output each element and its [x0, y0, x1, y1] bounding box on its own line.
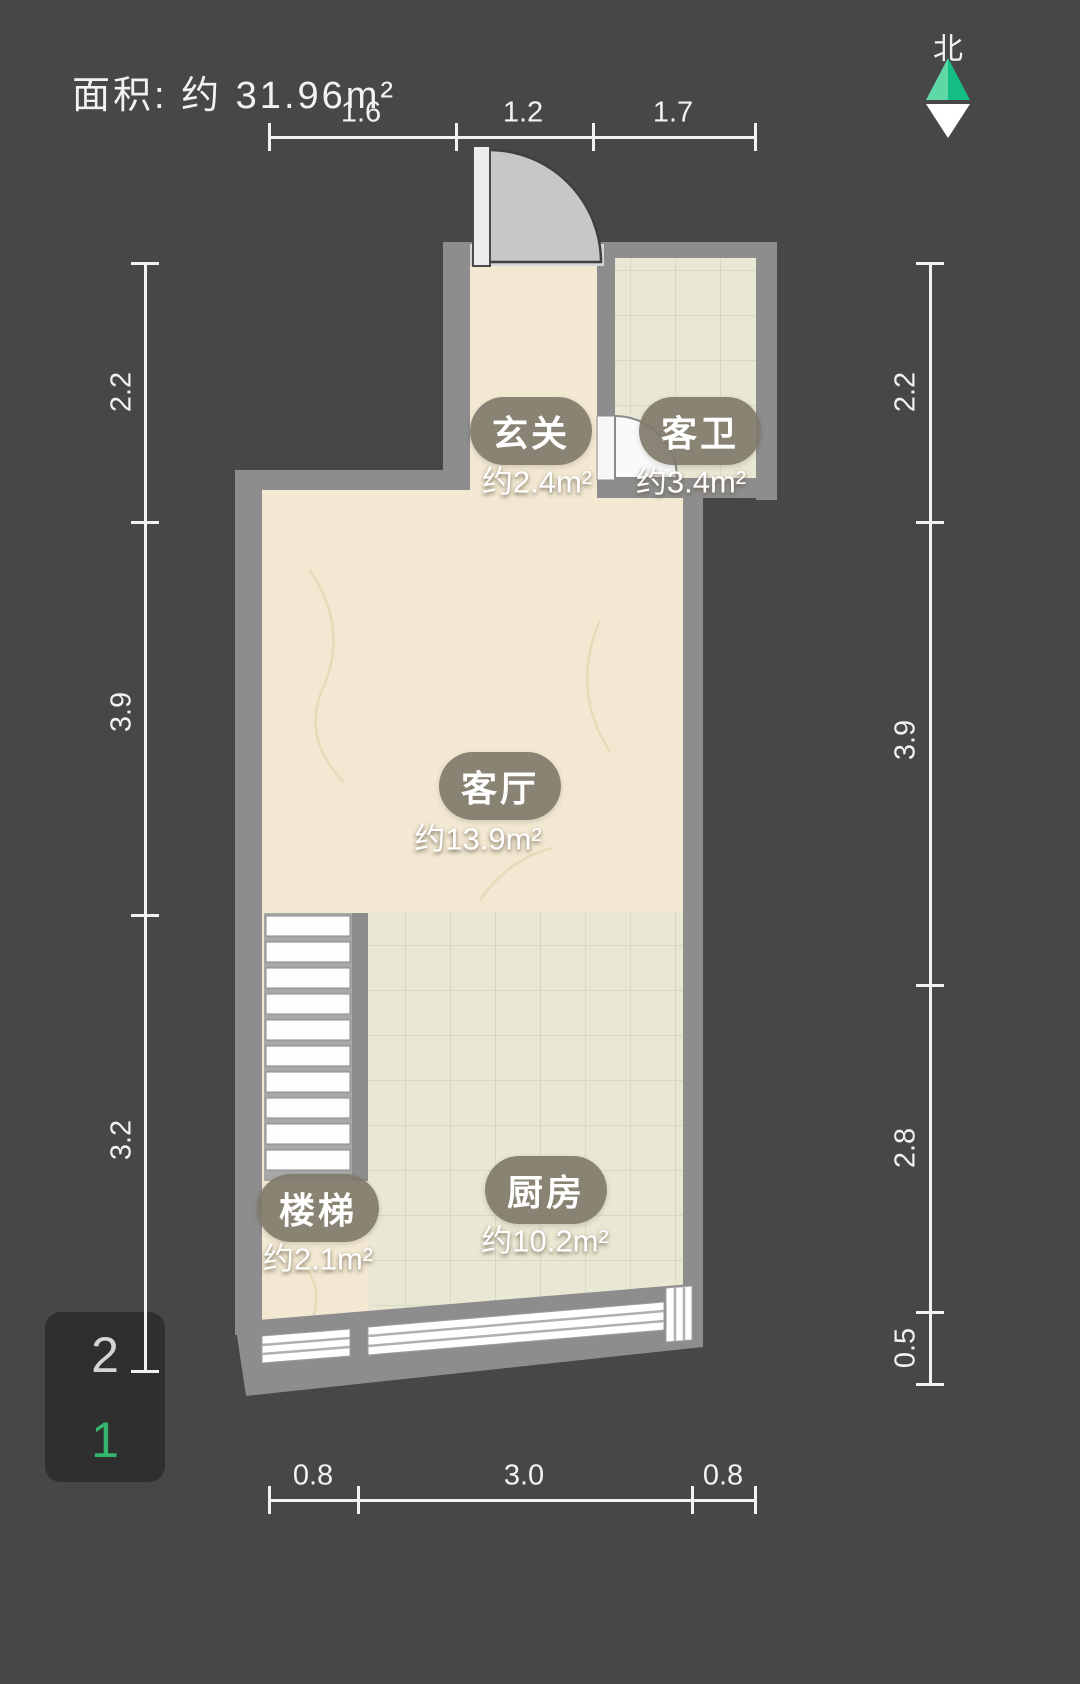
room-area-entry: 约2.4m² — [482, 457, 592, 502]
room-label-stairs: 楼梯 — [257, 1174, 379, 1242]
room-labels: 玄关 约2.4m² 客卫 约3.4m² 客厅 约13.9m² 厨房 约10.2m… — [0, 0, 1080, 1684]
room-area-stairs: 约2.1m² — [263, 1234, 373, 1279]
room-area-kitchen: 约10.2m² — [481, 1216, 608, 1261]
room-label-entry: 玄关 — [470, 397, 592, 465]
room-label-bathroom: 客卫 — [639, 397, 761, 465]
room-area-bathroom: 约3.4m² — [636, 457, 746, 502]
room-label-kitchen: 厨房 — [485, 1156, 607, 1224]
room-label-living-room: 客厅 — [439, 752, 561, 820]
room-area-living-room: 约13.9m² — [414, 814, 541, 859]
